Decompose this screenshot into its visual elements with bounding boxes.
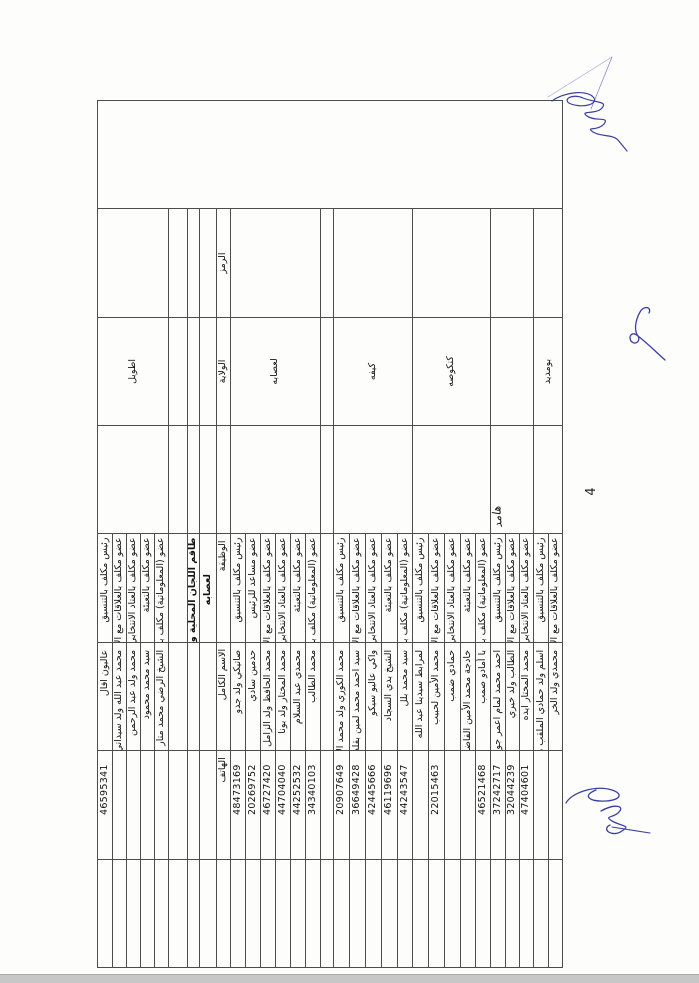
phone-cell: 32044239 — [506, 751, 520, 859]
blank-cell — [334, 426, 413, 534]
table-row: الرمزالولايةالوظيفةالاسم الكاملالهاتف — [217, 101, 231, 968]
phone-cell-text: 42445666 — [368, 751, 378, 815]
scanned-page: اطويلرئيس مكلف بالتنسيقعاليون افال465953… — [0, 0, 699, 983]
position-cell-text: عضو مكلف بالعتاد الانتخابي و عمليات الاق… — [128, 535, 138, 643]
phone-cell — [127, 751, 141, 859]
cell-empty — [200, 859, 217, 967]
phone-cell: 44704040 — [276, 751, 291, 859]
empty-left-cell — [113, 859, 127, 967]
empty-left-cell — [413, 859, 429, 967]
phone-cell-text: 34340103 — [308, 751, 318, 815]
header-wilaya: الولاية — [217, 317, 231, 425]
phone-cell-text: 32044239 — [507, 751, 517, 815]
code-cell — [98, 209, 169, 317]
table-row: هامدرئيس مكلف بالتنسيقاحمد محمد لمام اعم… — [491, 101, 506, 968]
empty-left-cell — [155, 859, 169, 967]
position-cell-text: عضو مكلف بالتعبئة — [142, 535, 152, 613]
position-cell-text: عضو مكلف بالتعبئة — [293, 535, 303, 613]
phone-cell — [549, 751, 563, 859]
position-cell-text: عضو مكلف بالعلاقات مع الإدارة و اللجان ا… — [352, 535, 362, 643]
name-cell-text: الشيخ بدي السجاد — [384, 643, 394, 721]
cell-empty — [321, 534, 334, 642]
cell-empty — [321, 426, 334, 534]
phone-cell: 47404601 — [520, 751, 534, 859]
cell-empty — [188, 209, 200, 317]
name-cell: محمدي ولد الخر — [549, 642, 563, 750]
position-cell-text: عضو مكلف بالعلاقات مع الإدارة و اللجان ا… — [263, 535, 273, 643]
cell-empty — [188, 426, 200, 534]
name-cell-text: محمد عبد الله ولد سيداتي — [114, 643, 124, 751]
empty-left-cell — [429, 859, 445, 967]
position-cell-text: عضو مكلف بالعتاد الانتخابي و عمليات الاق… — [447, 535, 457, 643]
name-cell: صاتيكي ولد جدو — [231, 642, 246, 750]
name-cell: احمد محمد لمام اعمر جوده — [491, 642, 506, 750]
header-phone: الهاتف — [217, 751, 231, 859]
cell-empty — [200, 642, 217, 750]
name-cell-text: الطالب ولد خيري — [507, 643, 517, 718]
table-row — [169, 101, 188, 968]
wilaya-cell: لعصابه — [231, 317, 321, 425]
phone-cell: 22015463 — [429, 751, 445, 859]
cell-empty — [188, 317, 200, 425]
phone-cell-text: 48473169 — [233, 751, 243, 815]
empty-left-cell — [291, 859, 306, 967]
empty-left-cell — [334, 859, 350, 967]
blank-cell — [413, 426, 491, 534]
name-cell-text: حدمين سادي — [248, 643, 258, 702]
committees-table: اطويلرئيس مكلف بالتنسيقعاليون افال465953… — [97, 100, 563, 968]
phone-cell-text: 44704040 — [278, 751, 288, 815]
cell-empty — [188, 642, 200, 750]
position-cell-text: رئيس مكلف بالتنسيق — [233, 535, 243, 623]
phone-cell — [534, 751, 549, 859]
table-row: طاقم اللجان المحلية والجهوية — [188, 101, 200, 968]
name-cell-text: خادجة محمد الأمين الفاضل — [463, 643, 473, 751]
phone-cell-text: 20269752 — [248, 751, 258, 815]
name-cell: حمادي ضمب — [445, 642, 461, 750]
blank-cell — [98, 426, 169, 534]
position-cell: عضو مساعد للرئيس — [246, 534, 261, 642]
code-cell — [231, 209, 321, 317]
position-cell-text: عضو مكلف بالعلاقات مع الإدارة و اللجان ا… — [431, 535, 441, 643]
name-cell: سيد احمد محمد لمين بقله — [350, 642, 366, 750]
position-cell: عضو مكلف بالعلاقات مع الإدارة و اللجان ا… — [261, 534, 276, 642]
wilaya-cell-text: لعصابه — [269, 358, 280, 384]
code-cell — [334, 209, 413, 317]
position-cell: عضو مكلف بالعتاد الانتخابي و عمليات الاق… — [445, 534, 461, 642]
empty-left-cell — [127, 859, 141, 967]
phone-cell: 42445666 — [366, 751, 382, 859]
name-cell: الطالب ولد خيري — [506, 642, 520, 750]
phone-cell: 20269752 — [246, 751, 261, 859]
position-cell-text: عضو (المعلوماتية) مكلف بمعالجة معطيات ال… — [156, 535, 166, 643]
name-cell: محمدي عبد السلام — [291, 642, 306, 750]
header-code-text: الرمز — [217, 253, 228, 274]
name-cell-text: عاليون افال — [100, 643, 110, 696]
name-cell-text: الشيخ الرضي محمد متار — [156, 643, 166, 746]
position-cell-text: عضو مكلف بالعتاد الانتخابي و عمليات الاق… — [521, 535, 531, 643]
name-cell-text: محمدي عبد السلام — [293, 643, 303, 724]
blank-cell — [534, 426, 563, 534]
position-cell: عضو مكلف بالعلاقات مع الإدارة و اللجان ا… — [506, 534, 520, 642]
name-cell-text: محمد الطالب — [308, 643, 318, 703]
phone-cell-text: 46119696 — [384, 751, 394, 815]
phone-cell-text: 37242717 — [493, 751, 503, 815]
phone-cell — [461, 751, 476, 859]
name-cell-text: محمد المختار ولد بونا — [278, 643, 288, 734]
page-number: 4 — [584, 0, 599, 983]
name-cell: سيد محمد محمود — [141, 642, 155, 750]
cell-empty — [169, 751, 188, 859]
position-cell-text: عضو مكلف بالعتاد الانتخابي و عمليات الاق… — [368, 535, 378, 643]
wilaya-cell-text: اطويل — [127, 359, 138, 384]
phone-cell: 48473169 — [231, 751, 246, 859]
position-cell: عضو مكلف بالتعبئة — [141, 534, 155, 642]
cell-empty — [217, 859, 231, 967]
name-cell: الشيخ بدي السجاد — [382, 642, 398, 750]
position-cell: رئيس مكلف بالتنسيق — [413, 534, 429, 642]
empty-left-cell — [520, 859, 534, 967]
name-cell: محمد الطالب — [306, 642, 321, 750]
wilaya-cell: اطويل — [98, 317, 169, 425]
empty-left-cell — [246, 859, 261, 967]
position-cell: عضو مكلف بالعلاقات مع الإدارة و اللجان ا… — [549, 534, 563, 642]
phone-cell — [413, 751, 429, 859]
rotated-table-layer: اطويلرئيس مكلف بالتنسيقعاليون افال465953… — [0, 0, 699, 983]
header-full-name: الاسم الكامل — [217, 642, 231, 750]
table-title: طاقم اللجان المحلية والجهوية — [188, 534, 200, 642]
empty-left-cell — [476, 859, 491, 967]
position-cell-text: عضو مكلف بالتعبئة — [384, 535, 394, 613]
phone-cell — [155, 751, 169, 859]
position-cell: رئيس مكلف بالتنسيق — [334, 534, 350, 642]
name-cell: حدمين سادي — [246, 642, 261, 750]
table-row — [321, 101, 334, 968]
phone-cell-text: 46727420 — [263, 751, 273, 815]
phone-cell — [113, 751, 127, 859]
position-cell-text: عضو (المعلوماتية) مكلف بمعالجة معطيات ال… — [308, 535, 318, 643]
cell-empty — [321, 642, 334, 750]
empty-left-cell — [382, 859, 398, 967]
name-cell-text: سيد احمد محمد لمين بقله — [352, 643, 362, 751]
table-subtitle-text: لعصابه — [203, 571, 213, 605]
name-cell-text: محمد الكوري ولد محمد الأمين احمدو — [336, 643, 346, 751]
name-cell: محمد الأمين لحبيب — [429, 642, 445, 750]
wilaya-cell-text: كيفه — [367, 363, 378, 380]
position-cell: عضو مكلف بالعلاقات مع الإدارة و اللجان ا… — [429, 534, 445, 642]
position-cell-text: رئيس مكلف بالتنسيق — [336, 535, 346, 623]
header-phone-text: الهاتف — [217, 751, 228, 782]
phone-cell-text: 46521468 — [478, 751, 488, 815]
phone-cell-text: 36649428 — [352, 751, 362, 815]
name-cell: واكي عاليو سيكو — [366, 642, 382, 750]
empty-left-cell — [231, 859, 246, 967]
cell-empty — [169, 642, 188, 750]
position-cell: عضو (المعلوماتية) مكلف بمعالجة معطيات ال… — [155, 534, 169, 642]
blank-cell: هامد — [491, 426, 534, 534]
wilaya-cell-text: بومديد — [542, 359, 553, 384]
name-cell-text: سيد محمد بلل — [400, 643, 410, 707]
phone-cell: 44243547 — [398, 751, 413, 859]
cell-empty — [321, 317, 334, 425]
empty-left-cell — [445, 859, 461, 967]
empty-left-cell — [261, 859, 276, 967]
name-cell-text: محمد المختار ايده — [521, 643, 531, 721]
name-cell-text: صاتيكي ولد جدو — [233, 643, 243, 714]
position-cell-text: عضو مكلف بالعلاقات مع الإدارة و اللجان ا… — [550, 535, 560, 643]
handwritten-wilaya-note: هامد — [491, 506, 505, 529]
phone-cell: 34340103 — [306, 751, 321, 859]
name-cell: با أمادو صمب — [476, 642, 491, 750]
header-wilaya-text: الولاية — [217, 360, 228, 384]
phone-cell-text: 46595341 — [100, 751, 110, 815]
cell-empty — [169, 859, 188, 967]
cell-empty — [200, 426, 217, 534]
wilaya-cell: كيفه — [334, 317, 413, 425]
header-position-text: الوظيفة — [217, 535, 228, 572]
name-cell-text: محمد الحافظ ولد الزامل — [263, 643, 273, 747]
position-cell: عضو مكلف بالعتاد الانتخابي و عمليات الاق… — [276, 534, 291, 642]
name-cell: خادجة محمد الأمين الفاضل — [461, 642, 476, 750]
header-position: الوظيفة — [217, 534, 231, 642]
position-cell: عضو مكلف بالعلاقات مع الإدارة و اللجان ا… — [113, 534, 127, 642]
phone-cell-text: 20907649 — [336, 751, 346, 815]
code-cell — [491, 209, 534, 317]
phone-cell: 36649428 — [350, 751, 366, 859]
table-row: كيفهرئيس مكلف بالتنسيقمحمد الكوري ولد مح… — [334, 101, 350, 968]
name-cell: الشيخ الرضي محمد متار — [155, 642, 169, 750]
wilaya-cell: بومديد — [534, 317, 563, 425]
empty-left-cell — [350, 859, 366, 967]
table-row: كنكوصهرئيس مكلف بالتنسيقلمرابط سيدينا عب… — [413, 101, 429, 968]
position-cell: عضو (المعلوماتية) مكلف بمعالجة معطيات ال… — [476, 534, 491, 642]
empty-left-cell — [366, 859, 382, 967]
position-cell: عضو مكلف بالعتاد الانتخابي و عمليات الاق… — [127, 534, 141, 642]
phone-cell-text: 22015463 — [431, 751, 441, 815]
name-cell-text: احمد محمد لمام اعمر جوده — [493, 643, 503, 751]
name-cell-text: با أمادو صمب — [478, 643, 488, 704]
phone-cell: 46119696 — [382, 751, 398, 859]
paper-sheet: اطويلرئيس مكلف بالتنسيقعاليون افال465953… — [0, 0, 699, 983]
cell-empty — [321, 209, 334, 317]
wilaya-cell-text: كنكوصه — [445, 356, 456, 387]
code-cell — [534, 209, 563, 317]
position-cell: عضو مكلف بالتعبئة — [382, 534, 398, 642]
cell-empty — [188, 859, 200, 967]
phone-cell-text: 44243547 — [400, 751, 410, 815]
name-cell: لمرابط سيدينا عبد الله — [413, 642, 429, 750]
wilaya-cell: كنكوصه — [413, 317, 491, 425]
cell-empty — [200, 317, 217, 425]
phone-cell — [141, 751, 155, 859]
empty-right-column — [98, 101, 563, 209]
position-cell: رئيس مكلف بالتنسيق — [231, 534, 246, 642]
cell-empty — [169, 209, 188, 317]
empty-left-cell — [141, 859, 155, 967]
table-row: اطويلرئيس مكلف بالتنسيقعاليون افال465953… — [98, 101, 113, 968]
phone-cell: 37242717 — [491, 751, 506, 859]
name-cell-text: لمرابط سيدينا عبد الله — [415, 643, 425, 739]
position-cell-text: عضو مكلف بالعتاد الانتخابي و عمليات الاق… — [278, 535, 288, 643]
phone-cell-text: 47404601 — [521, 751, 531, 815]
name-cell-text: محمد ولد عبد الرحمن — [128, 643, 138, 736]
name-cell-text: اسلم ولد حمادي الملقب محمد الأمين — [536, 643, 546, 751]
name-cell-text: سيد محمد محمود — [142, 643, 152, 719]
name-cell: محمد ولد عبد الرحمن — [127, 642, 141, 750]
position-cell-text: رئيس مكلف بالتنسيق — [100, 535, 110, 623]
code-cell — [413, 209, 491, 317]
position-cell-text: رئيس مكلف بالتنسيق — [493, 535, 503, 623]
header-full-name-text: الاسم الكامل — [217, 643, 228, 700]
position-cell-text: عضو (المعلوماتية) مكلف بمعالجة معطيات ال… — [478, 535, 488, 643]
empty-left-cell — [98, 859, 113, 967]
scan-bottom-edge — [0, 974, 699, 983]
cell-empty — [169, 534, 188, 642]
position-cell: عضو (المعلوماتية) مكلف بمعالجة معطيات ال… — [306, 534, 321, 642]
empty-left-cell — [549, 859, 563, 967]
table-row: بومديدرئيس مكلف بالتنسيقاسلم ولد حمادي ا… — [534, 101, 549, 968]
position-cell: عضو (المعلوماتية) مكلف بمعالجة معطيات ال… — [398, 534, 413, 642]
empty-left-cell — [276, 859, 291, 967]
cell-empty — [188, 751, 200, 859]
phone-cell: 46521468 — [476, 751, 491, 859]
table-title-text: طاقم اللجان المحلية والجهوية — [188, 535, 198, 643]
name-cell: محمد المختار ولد بونا — [276, 642, 291, 750]
name-cell: محمد عبد الله ولد سيداتي — [113, 642, 127, 750]
name-cell-text: حمادي ضمب — [447, 643, 457, 702]
phone-cell: 44252532 — [291, 751, 306, 859]
phone-cell — [445, 751, 461, 859]
position-cell: عضو مكلف بالتعبئة — [291, 534, 306, 642]
empty-left-cell — [491, 859, 506, 967]
name-cell: عاليون افال — [98, 642, 113, 750]
empty-left-cell — [534, 859, 549, 967]
cell-empty — [321, 751, 334, 859]
blank-cell — [231, 426, 321, 534]
empty-left-cell — [398, 859, 413, 967]
position-cell-text: رئيس مكلف بالتنسيق — [536, 535, 546, 623]
position-cell: عضو مكلف بالعلاقات مع الإدارة و اللجان ا… — [350, 534, 366, 642]
position-cell: رئيس مكلف بالتنسيق — [491, 534, 506, 642]
position-cell: عضو مكلف بالعتاد الانتخابي و عمليات الاق… — [520, 534, 534, 642]
name-cell-text: واكي عاليو سيكو — [368, 643, 378, 716]
header-code: الرمز — [217, 209, 231, 317]
table-row: لعصابه — [200, 101, 217, 968]
position-cell: عضو مكلف بالعتاد الانتخابي و عمليات الاق… — [366, 534, 382, 642]
position-cell: رئيس مكلف بالتنسيق — [98, 534, 113, 642]
table-row: لعصابهرئيس مكلف بالتنسيقصاتيكي ولد جدو48… — [231, 101, 246, 968]
position-cell-text: رئيس مكلف بالتنسيق — [415, 535, 425, 623]
name-cell: اسلم ولد حمادي الملقب محمد الأمين — [534, 642, 549, 750]
name-cell-text: محمدي ولد الخر — [550, 643, 560, 715]
header-blank — [217, 426, 231, 534]
position-cell-text: عضو مكلف بالعلاقات مع الإدارة و اللجان ا… — [114, 535, 124, 643]
phone-cell-text: 44252532 — [293, 751, 303, 815]
position-cell-text: عضو مكلف بالتعبئة — [463, 535, 473, 613]
name-cell: محمد المختار ايده — [520, 642, 534, 750]
empty-left-cell — [461, 859, 476, 967]
cell-empty — [200, 751, 217, 859]
name-cell-text: محمد الأمين لحبيب — [431, 643, 441, 725]
name-cell: سيد محمد بلل — [398, 642, 413, 750]
position-cell: رئيس مكلف بالتنسيق — [534, 534, 549, 642]
phone-cell: 20907649 — [334, 751, 350, 859]
name-cell: محمد الكوري ولد محمد الأمين احمدو — [334, 642, 350, 750]
position-cell-text: عضو (المعلوماتية) مكلف بمعالجة معطيات ال… — [400, 535, 410, 643]
cell-empty — [200, 209, 217, 317]
cell-empty — [169, 317, 188, 425]
empty-left-cell — [506, 859, 520, 967]
phone-cell: 46727420 — [261, 751, 276, 859]
empty-left-cell — [306, 859, 321, 967]
position-cell-text: عضو مكلف بالعلاقات مع الإدارة و اللجان ا… — [507, 535, 517, 643]
position-cell: عضو مكلف بالتعبئة — [461, 534, 476, 642]
phone-cell: 46595341 — [98, 751, 113, 859]
wilaya-cell — [491, 317, 534, 425]
cell-empty — [169, 426, 188, 534]
table-subtitle: لعصابه — [200, 534, 217, 642]
position-cell-text: عضو مساعد للرئيس — [248, 535, 258, 619]
cell-empty — [321, 859, 334, 967]
name-cell: محمد الحافظ ولد الزامل — [261, 642, 276, 750]
